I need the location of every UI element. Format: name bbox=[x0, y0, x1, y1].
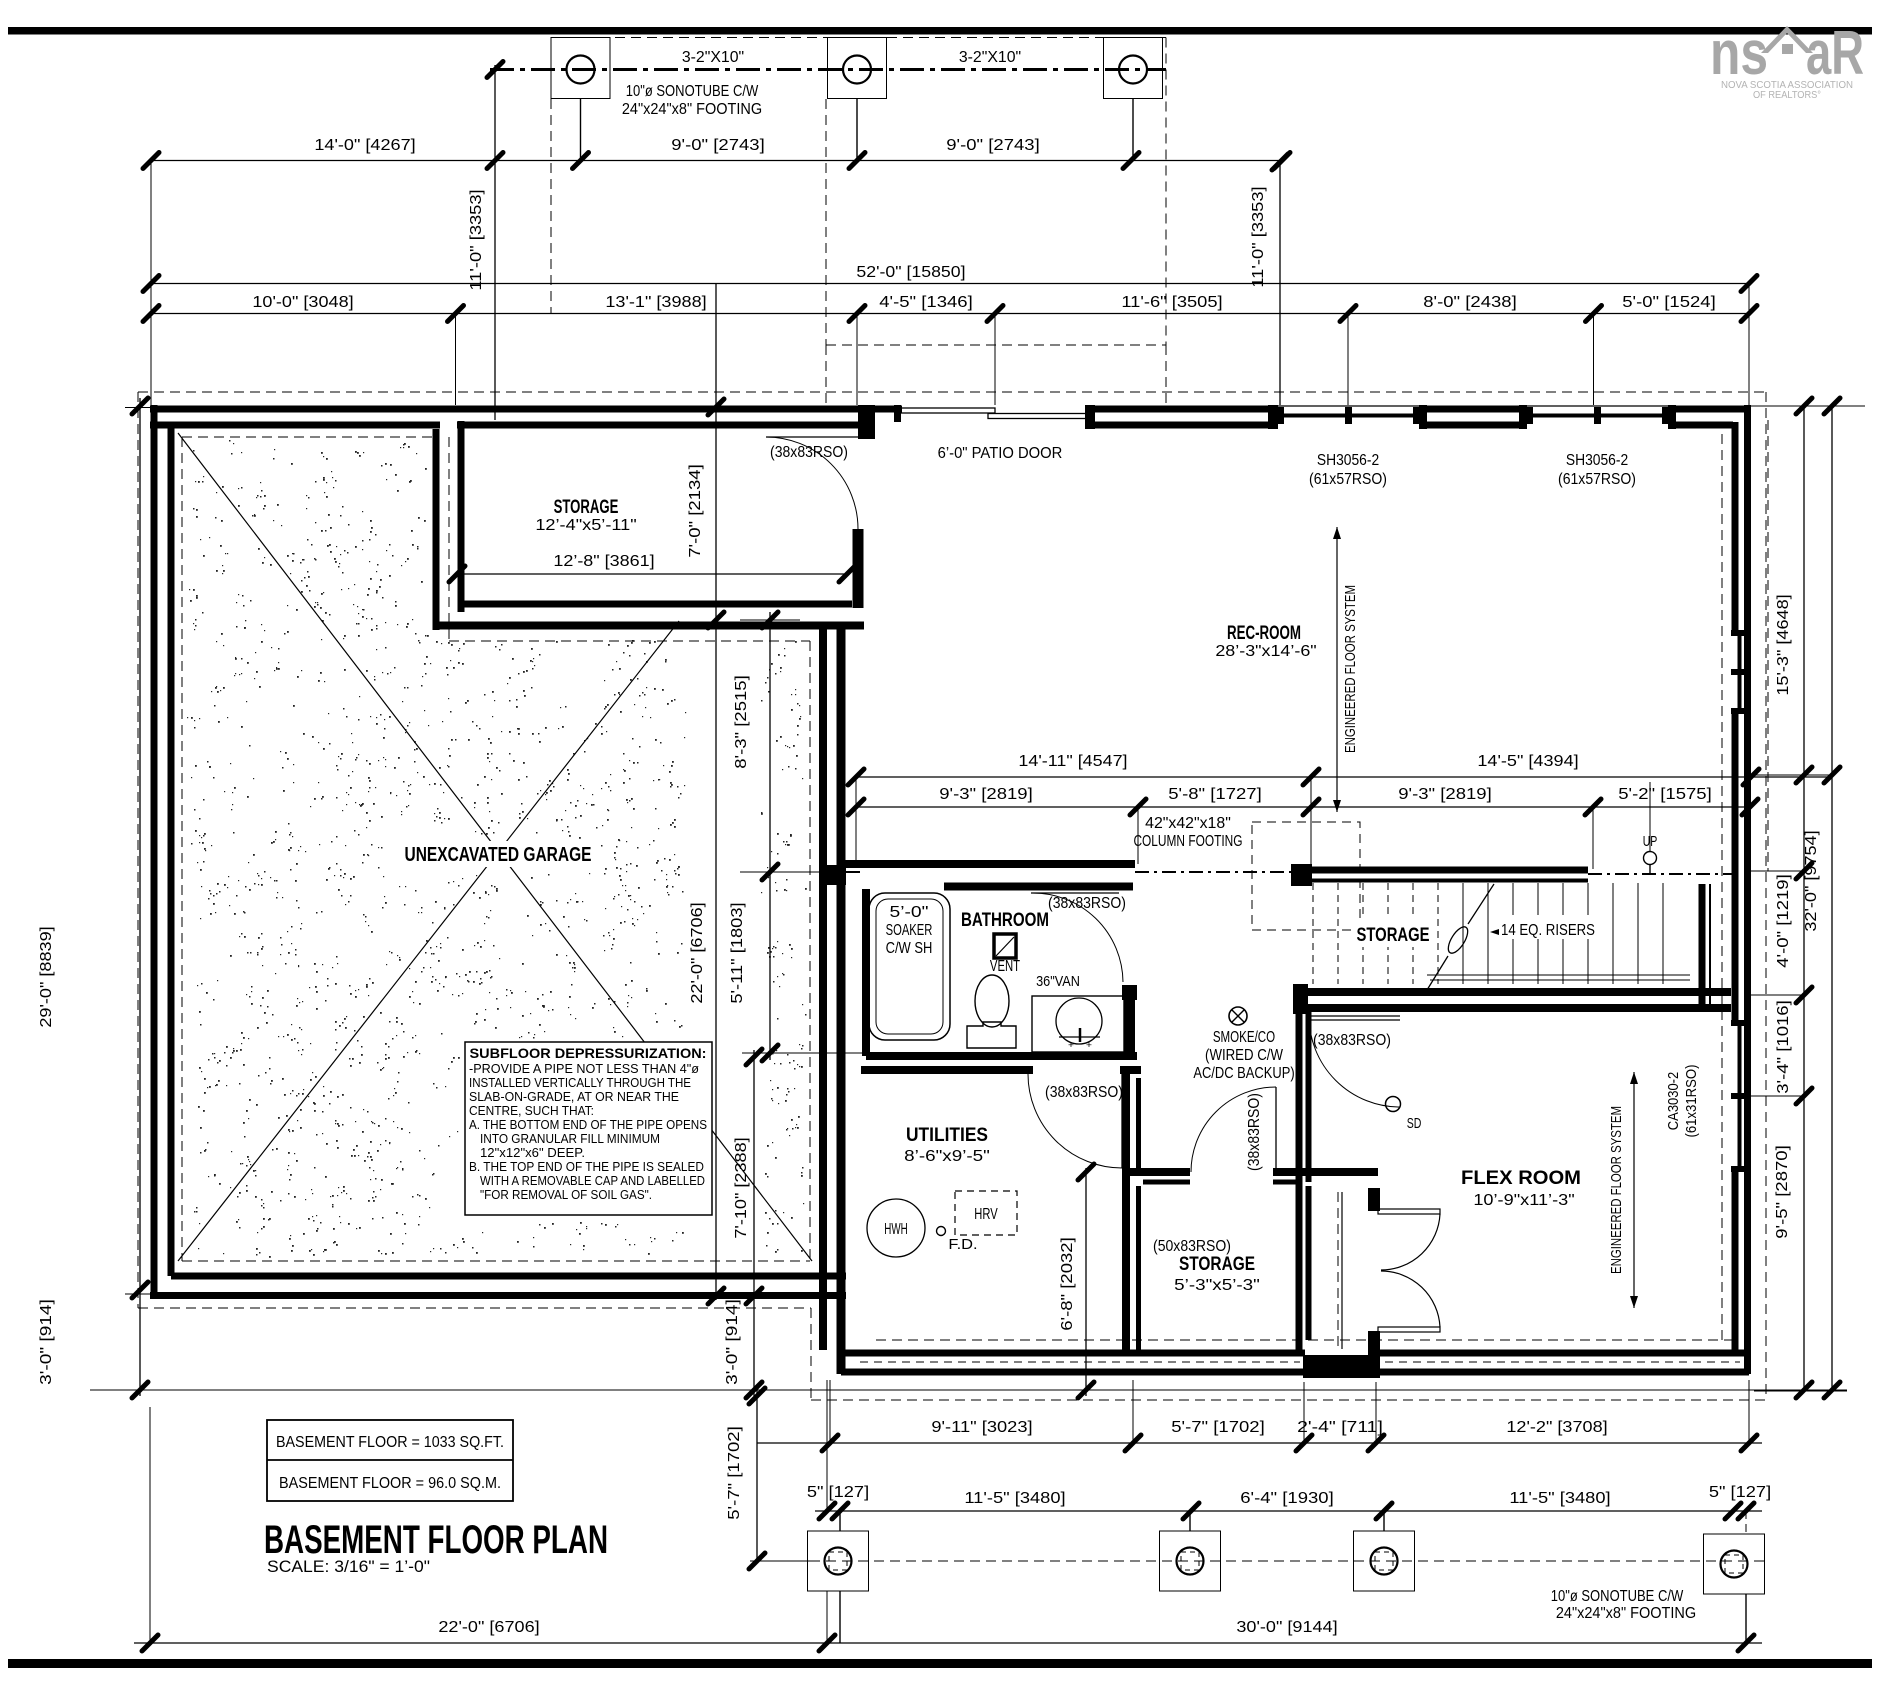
svg-text:5'-11" [1803]: 5'-11" [1803] bbox=[729, 902, 746, 1003]
svg-text:36"VAN: 36"VAN bbox=[1036, 973, 1080, 990]
svg-text:C/W SH: C/W SH bbox=[886, 940, 933, 957]
svg-text:INTO GRANULAR FILL MINIMUM: INTO GRANULAR FILL MINIMUM bbox=[480, 1131, 660, 1146]
svg-text:8’-6"x9’-5": 8’-6"x9’-5" bbox=[904, 1148, 990, 1165]
svg-text:12’-4"x5’-11": 12’-4"x5’-11" bbox=[535, 517, 636, 534]
svg-text:3'-4" [1016]: 3'-4" [1016] bbox=[1775, 1000, 1792, 1094]
svg-text:(WIRED C/W: (WIRED C/W bbox=[1205, 1047, 1284, 1064]
svg-text:9'-5" [2870]: 9'-5" [2870] bbox=[1774, 1145, 1791, 1239]
svg-text:6'-4" [1930]: 6'-4" [1930] bbox=[1240, 1490, 1334, 1507]
svg-text:8'-3" [2515]: 8'-3" [2515] bbox=[733, 675, 750, 769]
svg-text:10'-0" [3048]: 10'-0" [3048] bbox=[252, 294, 353, 311]
svg-text:5'-2" [1575]: 5'-2" [1575] bbox=[1618, 786, 1712, 803]
svg-text:10"ø SONOTUBE C/W: 10"ø SONOTUBE C/W bbox=[626, 83, 759, 100]
svg-text:HWH: HWH bbox=[884, 1221, 907, 1238]
svg-text:BASEMENT FLOOR = 96.0 SQ.M.: BASEMENT FLOOR = 96.0 SQ.M. bbox=[279, 1475, 501, 1492]
svg-text:BASEMENT FLOOR PLAN: BASEMENT FLOOR PLAN bbox=[264, 1518, 608, 1562]
svg-text:12"x12"x6" DEEP.: 12"x12"x6" DEEP. bbox=[480, 1145, 585, 1160]
svg-text:11'-5" [3480]: 11'-5" [3480] bbox=[1509, 1490, 1610, 1507]
svg-text:11'-0" [3353]: 11'-0" [3353] bbox=[468, 189, 485, 290]
svg-text:UTILITIES: UTILITIES bbox=[906, 1125, 988, 1146]
svg-text:AC/DC BACKUP): AC/DC BACKUP) bbox=[1193, 1065, 1294, 1082]
svg-text:BATHROOM: BATHROOM bbox=[961, 910, 1049, 931]
svg-text:5'-0" [1524]: 5'-0" [1524] bbox=[1622, 294, 1716, 311]
svg-text:9'-0" [2743]: 9'-0" [2743] bbox=[946, 137, 1040, 154]
svg-text:SH3056-2: SH3056-2 bbox=[1317, 452, 1379, 469]
svg-text:FLEX ROOM: FLEX ROOM bbox=[1461, 1168, 1581, 1189]
svg-text:(38x83RSO): (38x83RSO) bbox=[1045, 1084, 1123, 1101]
svg-text:+: + bbox=[1086, 1040, 1092, 1050]
svg-text:(38x83RSO): (38x83RSO) bbox=[1246, 1093, 1263, 1171]
svg-text:F.D.: F.D. bbox=[948, 1236, 977, 1253]
svg-text:ENGINEERED FLOOR SYSTEM: ENGINEERED FLOOR SYSTEM bbox=[1342, 585, 1359, 753]
svg-text:SLAB-ON-GRADE, AT OR NEAR THE: SLAB-ON-GRADE, AT OR NEAR THE bbox=[469, 1089, 679, 1104]
svg-text:SOAKER: SOAKER bbox=[886, 922, 933, 939]
svg-text:(38x83RSO): (38x83RSO) bbox=[1313, 1032, 1391, 1049]
svg-text:aR: aR bbox=[1806, 19, 1864, 88]
svg-text:3'-0" [914]: 3'-0" [914] bbox=[724, 1299, 741, 1385]
svg-text:5'-8" [1727]: 5'-8" [1727] bbox=[1168, 786, 1262, 803]
svg-text:11'-6" [3505]: 11'-6" [3505] bbox=[1121, 294, 1222, 311]
svg-text:SD: SD bbox=[1407, 1115, 1422, 1132]
svg-text:9'-3" [2819]: 9'-3" [2819] bbox=[1398, 786, 1492, 803]
svg-text:4'-0" [1219]: 4'-0" [1219] bbox=[1775, 874, 1792, 968]
svg-text:(38x83RSO): (38x83RSO) bbox=[770, 444, 848, 461]
svg-text:(61x57RSO): (61x57RSO) bbox=[1309, 471, 1387, 488]
svg-text:32'-0" [9754]: 32'-0" [9754] bbox=[1803, 830, 1820, 931]
svg-text:VENT: VENT bbox=[990, 958, 1021, 975]
svg-text:22'-0" [6706]: 22'-0" [6706] bbox=[689, 902, 706, 1003]
svg-text:5" [127]: 5" [127] bbox=[807, 1484, 869, 1501]
svg-text:14'-11" [4547]: 14'-11" [4547] bbox=[1018, 753, 1127, 770]
svg-text:WITH A REMOVABLE CAP AND LABEL: WITH A REMOVABLE CAP AND LABELLED bbox=[480, 1173, 705, 1188]
svg-text:STORAGE: STORAGE bbox=[554, 497, 619, 518]
svg-text:5’-3"x5’-3": 5’-3"x5’-3" bbox=[1174, 1277, 1260, 1294]
svg-text:10"ø SONOTUBE C/W: 10"ø SONOTUBE C/W bbox=[1551, 1588, 1684, 1605]
svg-text:UNEXCAVATED GARAGE: UNEXCAVATED GARAGE bbox=[405, 844, 592, 866]
svg-text:BASEMENT FLOOR = 1033 SQ.FT.: BASEMENT FLOOR = 1033 SQ.FT. bbox=[276, 1434, 504, 1451]
svg-text:SMOKE/CO: SMOKE/CO bbox=[1213, 1029, 1275, 1046]
svg-text:"FOR REMOVAL OF SOIL GAS".: "FOR REMOVAL OF SOIL GAS". bbox=[480, 1187, 652, 1202]
svg-text:(61x57RSO): (61x57RSO) bbox=[1558, 471, 1636, 488]
svg-text:STORAGE: STORAGE bbox=[1357, 925, 1430, 946]
svg-text:7'-0" [2134]: 7'-0" [2134] bbox=[687, 464, 704, 558]
svg-text:(61x31RSO): (61x31RSO) bbox=[1683, 1065, 1700, 1138]
svg-text:11'-0" [3353]: 11'-0" [3353] bbox=[1250, 186, 1267, 287]
svg-text:9'-0" [2743]: 9'-0" [2743] bbox=[671, 137, 765, 154]
svg-text:29'-0" [8839]: 29'-0" [8839] bbox=[38, 926, 55, 1027]
svg-text:14'-0" [4267]: 14'-0" [4267] bbox=[314, 137, 415, 154]
svg-text:2'-4" [711]: 2'-4" [711] bbox=[1297, 1419, 1383, 1436]
svg-text:ENGINEERED FLOOR SYSTEM: ENGINEERED FLOOR SYSTEM bbox=[1608, 1106, 1625, 1274]
svg-text:HRV: HRV bbox=[974, 1206, 998, 1223]
svg-text:5'-7" [1702]: 5'-7" [1702] bbox=[726, 1426, 743, 1520]
svg-text:3-2"X10": 3-2"X10" bbox=[959, 49, 1021, 66]
svg-text:REC-ROOM: REC-ROOM bbox=[1227, 623, 1301, 644]
svg-text:-PROVIDE A PIPE NOT LESS THAN: -PROVIDE A PIPE NOT LESS THAN 4"ø bbox=[469, 1061, 699, 1076]
svg-text:7'-10" [2388]: 7'-10" [2388] bbox=[733, 1137, 750, 1238]
svg-text:5" [127]: 5" [127] bbox=[1709, 1484, 1771, 1501]
svg-text:A. THE BOTTOM END OF THE PIPE: A. THE BOTTOM END OF THE PIPE OPENS bbox=[469, 1117, 707, 1132]
svg-text:15'-3" [4648]: 15'-3" [4648] bbox=[1775, 594, 1792, 695]
svg-text:INSTALLED VERTICALLY THROUGH T: INSTALLED VERTICALLY THROUGH THE bbox=[469, 1075, 691, 1090]
svg-text:9'-11" [3023]: 9'-11" [3023] bbox=[931, 1419, 1032, 1436]
svg-text:5’-0": 5’-0" bbox=[890, 904, 929, 921]
svg-text:OF REALTORS°: OF REALTORS° bbox=[1753, 90, 1821, 101]
svg-text:13'-1" [3988]: 13'-1" [3988] bbox=[605, 294, 706, 311]
svg-text:52'-0" [15850]: 52'-0" [15850] bbox=[856, 264, 965, 281]
svg-text:14 EQ. RISERS: 14 EQ. RISERS bbox=[1501, 922, 1595, 939]
svg-text:3-2"X10": 3-2"X10" bbox=[682, 49, 744, 66]
svg-text:14'-5" [4394]: 14'-5" [4394] bbox=[1477, 753, 1578, 770]
svg-text:22'-0" [6706]: 22'-0" [6706] bbox=[438, 1619, 539, 1636]
svg-text:SCALE: 3/16" = 1’-0": SCALE: 3/16" = 1’-0" bbox=[267, 1558, 430, 1576]
svg-text:+: + bbox=[1068, 1040, 1074, 1050]
svg-text:(38x83RSO): (38x83RSO) bbox=[1048, 895, 1126, 912]
svg-text:28’-3"x14’-6": 28’-3"x14’-6" bbox=[1215, 643, 1316, 660]
svg-text:STORAGE: STORAGE bbox=[1179, 1254, 1255, 1275]
svg-text:9'-3" [2819]: 9'-3" [2819] bbox=[939, 786, 1033, 803]
svg-text:30'-0" [9144]: 30'-0" [9144] bbox=[1236, 1619, 1337, 1636]
svg-text:6’-0" PATIO DOOR: 6’-0" PATIO DOOR bbox=[938, 445, 1063, 462]
svg-text:6'-8" [2032]: 6'-8" [2032] bbox=[1059, 1237, 1076, 1331]
svg-text:CENTRE, SUCH THAT:: CENTRE, SUCH THAT: bbox=[469, 1103, 594, 1118]
svg-text:(50x83RSO): (50x83RSO) bbox=[1153, 1238, 1231, 1255]
svg-text:CA3030-2: CA3030-2 bbox=[1665, 1072, 1682, 1130]
svg-text:SUBFLOOR DEPRESSURIZATION:: SUBFLOOR DEPRESSURIZATION: bbox=[470, 1046, 707, 1061]
svg-text:10’-9"x11’-3": 10’-9"x11’-3" bbox=[1473, 1192, 1574, 1209]
svg-text:12'-2" [3708]: 12'-2" [3708] bbox=[1506, 1419, 1607, 1436]
svg-text:4'-5" [1346]: 4'-5" [1346] bbox=[879, 294, 973, 311]
svg-text:42"x42"x18": 42"x42"x18" bbox=[1145, 815, 1231, 832]
svg-text:11'-5" [3480]: 11'-5" [3480] bbox=[964, 1490, 1065, 1507]
svg-text:SH3056-2: SH3056-2 bbox=[1566, 452, 1628, 469]
svg-text:12’-8" [3861]: 12’-8" [3861] bbox=[553, 553, 654, 570]
svg-text:5'-7" [1702]: 5'-7" [1702] bbox=[1171, 1419, 1265, 1436]
svg-text:COLUMN FOOTING: COLUMN FOOTING bbox=[1133, 833, 1242, 850]
svg-text:3'-0" [914]: 3'-0" [914] bbox=[38, 1299, 55, 1385]
svg-text:ns: ns bbox=[1710, 19, 1768, 88]
svg-text:8'-0" [2438]: 8'-0" [2438] bbox=[1423, 294, 1517, 311]
svg-text:24"x24"x8" FOOTING: 24"x24"x8" FOOTING bbox=[1556, 1605, 1696, 1622]
svg-text:24"x24"x8" FOOTING: 24"x24"x8" FOOTING bbox=[622, 101, 762, 118]
svg-text:B. THE TOP END OF THE PIPE IS: B. THE TOP END OF THE PIPE IS SEALED bbox=[469, 1159, 704, 1174]
